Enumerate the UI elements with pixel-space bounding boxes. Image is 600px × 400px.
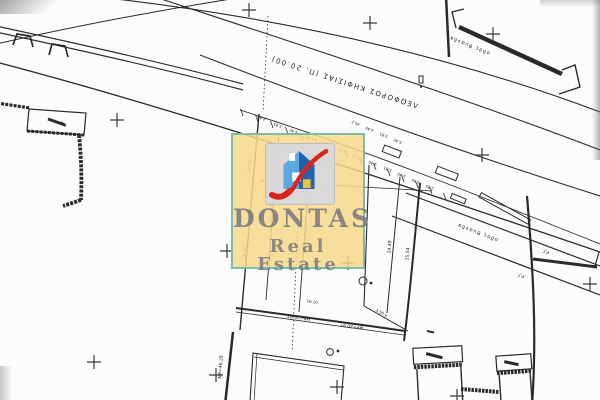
south-boundary-inner <box>236 312 404 335</box>
road-dim: 5.81 <box>382 165 392 173</box>
pole-marker-dot <box>420 86 422 88</box>
road-dim: 4.40 <box>364 125 374 133</box>
door <box>303 179 311 188</box>
swoosh-tail <box>272 191 289 197</box>
building-walls <box>499 373 532 400</box>
dimension-label: ΜΡ=20.97 <box>287 313 311 322</box>
street-name-label: ΛΕΩΦΟΡΟΣ ΚΗΦΙΣΙΑΣ (Π. 20.00) <box>270 54 419 109</box>
brand-tagline: Real Estate <box>233 238 363 274</box>
building-outline <box>413 346 463 365</box>
side-street: οδός Βυανδα οδός Βυανδα <box>392 0 600 295</box>
road-dim: 45.2 <box>350 119 360 127</box>
building-northwest <box>0 103 86 206</box>
pole-marker <box>419 76 423 83</box>
dimension-label: Ρ.Γ. <box>541 247 551 256</box>
projection-line <box>263 16 268 112</box>
road-dim: 2.85 <box>424 183 434 191</box>
survey-plan-image: ΛΕΩΦΟΡΟΣ ΚΗΦΙΣΙΑΣ (Π. 20.00) οδός Βυανδα… <box>0 0 600 400</box>
brand-logo-tile <box>265 143 335 205</box>
road-dim: 4.00 <box>410 177 420 185</box>
road-dim: 5.40 <box>392 137 402 145</box>
building-southeast-b <box>496 354 534 400</box>
chimney <box>289 153 295 161</box>
east-boundary <box>527 196 599 400</box>
building-walls <box>417 367 463 400</box>
wall-hatched <box>0 103 30 108</box>
building-outline <box>250 353 344 400</box>
watermark-panel: DONTAS Real Estate <box>231 133 365 269</box>
boundary-line <box>446 0 449 57</box>
entrance-arrow <box>504 361 518 366</box>
sidewalk-line <box>0 32 243 90</box>
building-inner-line <box>254 353 257 400</box>
wall-corner <box>559 65 580 94</box>
wall-corner <box>452 9 464 28</box>
street-edge <box>406 193 600 266</box>
dimension-label: 16.10 <box>306 298 318 304</box>
wall-hatched <box>63 200 81 206</box>
plot-spur <box>364 306 408 331</box>
entrance-arrow <box>426 353 442 359</box>
building-south-center <box>250 353 344 400</box>
wall-hatched <box>497 371 532 373</box>
dimension-label: ΜΡ=46.29 <box>217 355 225 379</box>
plot-line-thick <box>404 183 420 341</box>
boundary-spur <box>533 259 597 267</box>
brand-name: DONTAS <box>233 206 363 231</box>
wall-hatched-connector <box>461 389 499 392</box>
sidewalk-line <box>0 26 243 84</box>
street-edge <box>392 216 600 295</box>
driveway-bump <box>13 34 33 47</box>
house-icon <box>266 144 332 202</box>
street-name-label: οδός Βυανδα <box>456 221 499 243</box>
road-dim: 5.40 <box>396 171 406 179</box>
boundary-line <box>0 0 250 44</box>
dimension-label: Ρ.Γ. <box>516 271 526 280</box>
dimension-label: 25.54 <box>405 247 412 260</box>
road-dim: 5.81 <box>378 131 388 139</box>
small-mark <box>427 331 434 333</box>
wall-hatched <box>79 135 81 200</box>
boundary-hook <box>595 252 599 266</box>
dimension-label: 24.49 <box>387 240 394 253</box>
west-boundary-thick <box>225 332 233 400</box>
wall-hatched <box>414 365 463 368</box>
